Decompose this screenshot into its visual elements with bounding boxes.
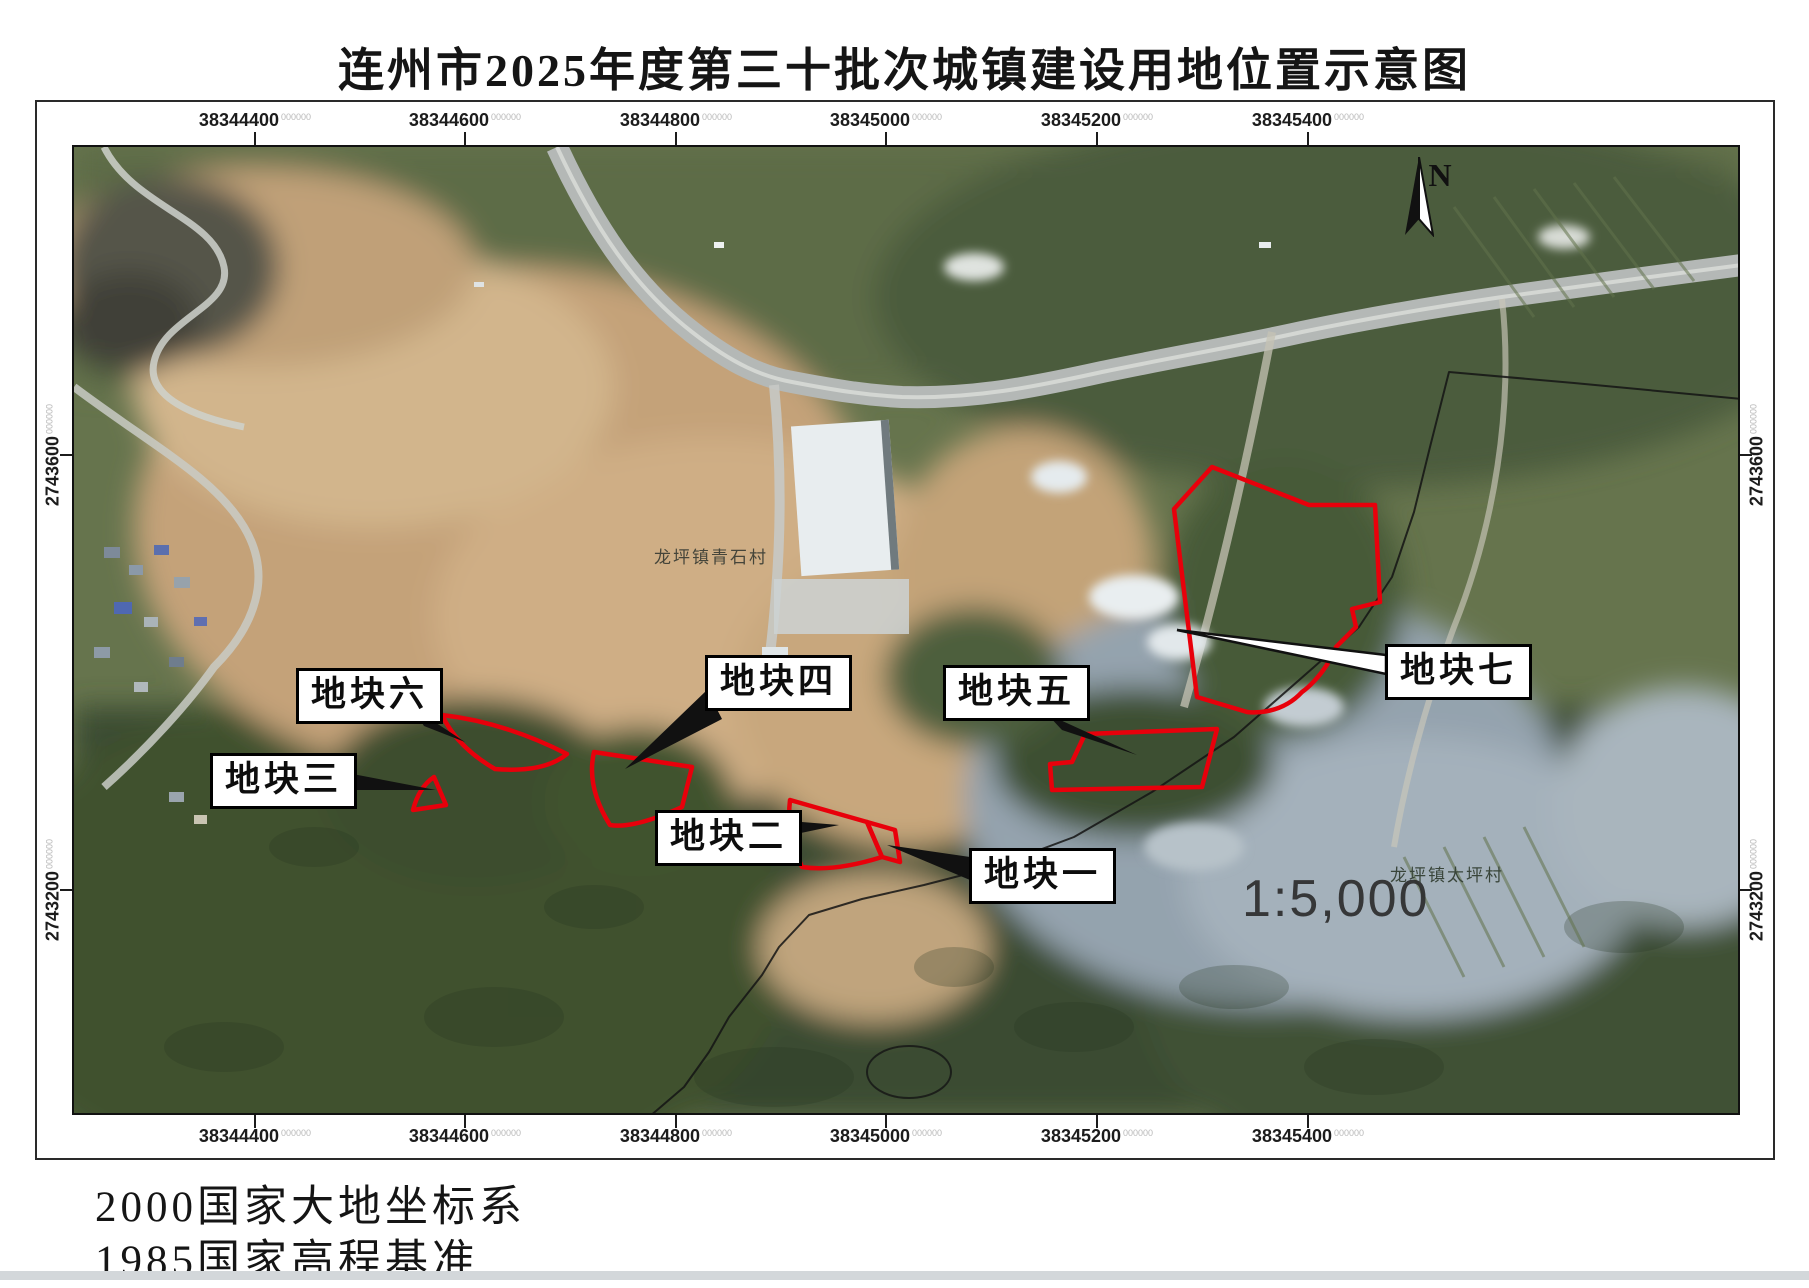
- callout-parcel-5: 地块五: [943, 665, 1090, 721]
- coord-top-2: 38344600000000: [409, 110, 521, 131]
- north-arrow: N: [1404, 157, 1476, 194]
- place-name-taiping: 龙坪镇太坪村: [1390, 861, 1504, 886]
- tick-left-1: [60, 454, 72, 456]
- coord-top-1: 38344400000000: [199, 110, 311, 131]
- coord-bottom-5: 38345200000000: [1041, 1126, 1153, 1147]
- coord-bottom-2: 38344600000000: [409, 1126, 521, 1147]
- satellite-map: 地块一 地块二 地块三 地块四 地块五 地块六 地块七 N 1:5,000 龙坪…: [72, 145, 1740, 1115]
- datum-note-coordinate-system: 2000国家大地坐标系: [95, 1172, 526, 1234]
- tick-top-1: [254, 132, 256, 145]
- coord-top-5: 38345200000000: [1041, 110, 1153, 131]
- satellite-image: [74, 147, 1740, 1115]
- callout-parcel-3: 地块三: [210, 753, 357, 809]
- tick-top-3: [675, 132, 677, 145]
- bottom-edge-strip: [0, 1271, 1809, 1280]
- coord-bottom-6: 38345400000000: [1252, 1126, 1364, 1147]
- coord-top-6: 38345400000000: [1252, 110, 1364, 131]
- callout-parcel-6: 地块六: [296, 668, 443, 724]
- tick-left-2: [60, 889, 72, 891]
- callout-parcel-7: 地块七: [1385, 644, 1532, 700]
- tick-right-1: [1740, 454, 1752, 456]
- coord-top-3: 38344800000000: [620, 110, 732, 131]
- map-title: 连州市2025年度第三十批次城镇建设用地位置示意图: [0, 34, 1809, 100]
- tick-right-2: [1740, 889, 1752, 891]
- callout-parcel-4: 地块四: [705, 655, 852, 711]
- coord-bottom-3: 38344800000000: [620, 1126, 732, 1147]
- tick-top-4: [885, 132, 887, 145]
- coord-top-4: 38345000000000: [830, 110, 942, 131]
- tick-top-2: [464, 132, 466, 145]
- satellite-terrain: [74, 147, 1740, 1115]
- coord-bottom-4: 38345000000000: [830, 1126, 942, 1147]
- coord-bottom-1: 38344400000000: [199, 1126, 311, 1147]
- tick-top-6: [1307, 132, 1309, 145]
- place-name-qingshi: 龙坪镇青石村: [654, 543, 768, 568]
- north-arrow-icon: [1404, 157, 1434, 237]
- tick-top-5: [1096, 132, 1098, 145]
- callout-parcel-1: 地块一: [969, 848, 1116, 904]
- callout-parcel-2: 地块二: [655, 810, 802, 866]
